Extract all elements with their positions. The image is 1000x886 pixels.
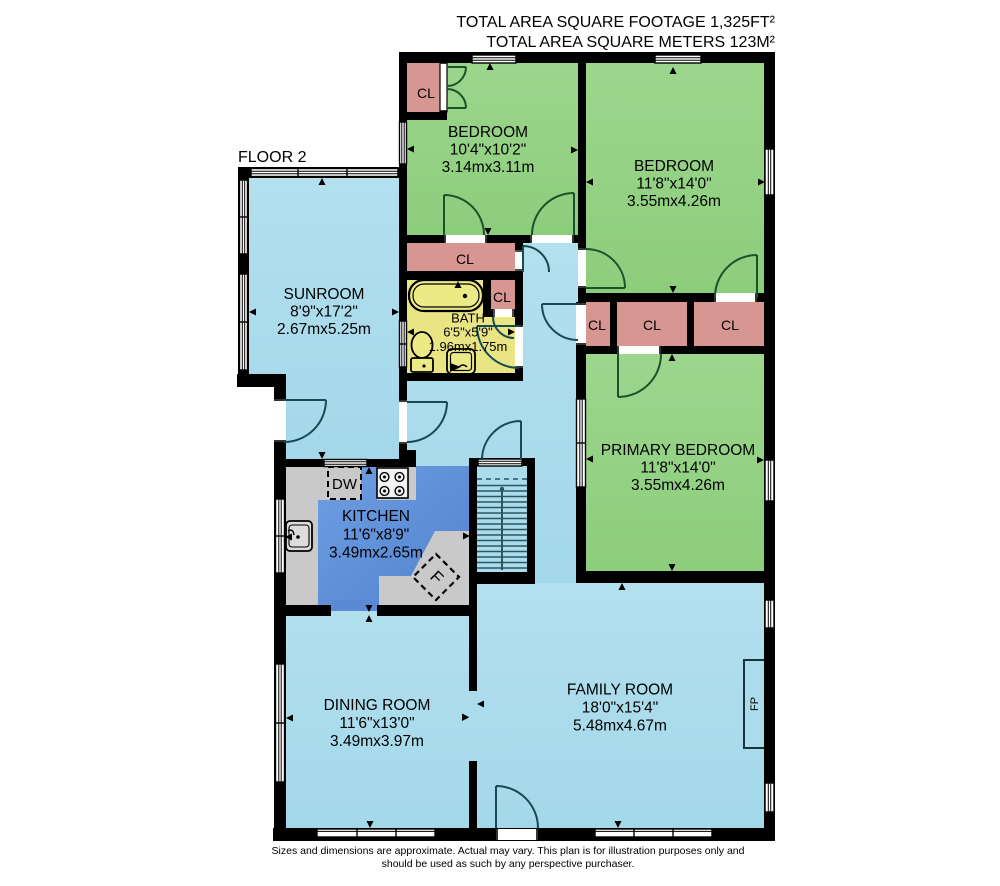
- svg-text:2.67mx5.25m: 2.67mx5.25m: [277, 321, 371, 338]
- svg-text:11'8"x14'0": 11'8"x14'0": [640, 460, 715, 477]
- svg-text:3.55mx4.26m: 3.55mx4.26m: [627, 193, 721, 210]
- svg-text:3.14mx3.11m: 3.14mx3.11m: [442, 159, 535, 176]
- svg-text:3.49mx3.97m: 3.49mx3.97m: [330, 733, 424, 750]
- svg-text:TOTAL AREA SQUARE METERS 123M²: TOTAL AREA SQUARE METERS 123M²: [486, 34, 775, 51]
- svg-text:18'0"x15'4": 18'0"x15'4": [582, 700, 658, 717]
- svg-text:6'5"x5'9": 6'5"x5'9": [443, 325, 493, 340]
- svg-text:11'8"x14'0": 11'8"x14'0": [636, 176, 711, 193]
- svg-text:11'6"x13'0": 11'6"x13'0": [339, 715, 414, 732]
- svg-text:FAMILY ROOM: FAMILY ROOM: [567, 682, 673, 699]
- svg-text:CL: CL: [456, 251, 474, 267]
- svg-text:1.96mx1.75m: 1.96mx1.75m: [429, 339, 508, 354]
- svg-text:PRIMARY BEDROOM: PRIMARY BEDROOM: [601, 442, 755, 459]
- svg-text:5.48mx4.67m: 5.48mx4.67m: [573, 718, 667, 735]
- svg-text:BEDROOM: BEDROOM: [634, 158, 714, 175]
- svg-text:3.49mx2.65m: 3.49mx2.65m: [329, 545, 423, 562]
- svg-text:TOTAL AREA SQUARE FOOTAGE 1,32: TOTAL AREA SQUARE FOOTAGE 1,325FT²: [456, 14, 775, 31]
- svg-text:KITCHEN: KITCHEN: [342, 508, 410, 525]
- svg-text:FLOOR 2: FLOOR 2: [238, 149, 307, 166]
- svg-text:CL: CL: [588, 317, 606, 333]
- svg-text:DINING ROOM: DINING ROOM: [324, 697, 431, 714]
- svg-text:should be used as such by any: should be used as such by any perspectiv…: [382, 858, 635, 870]
- svg-text:BEDROOM: BEDROOM: [448, 124, 528, 141]
- svg-text:CL: CL: [493, 289, 511, 305]
- svg-text:8'9"x17'2": 8'9"x17'2": [290, 304, 358, 321]
- svg-text:CL: CL: [643, 317, 661, 333]
- svg-text:FP: FP: [749, 697, 761, 711]
- svg-text:SUNROOM: SUNROOM: [284, 286, 365, 303]
- svg-text:10'4"x10'2": 10'4"x10'2": [450, 142, 526, 159]
- svg-text:3.55mx4.26m: 3.55mx4.26m: [631, 477, 725, 494]
- svg-text:CL: CL: [721, 317, 739, 333]
- svg-text:DW: DW: [332, 476, 358, 493]
- svg-text:Sizes and dimensions are appro: Sizes and dimensions are approximate. Ac…: [272, 845, 745, 857]
- svg-text:CL: CL: [417, 85, 435, 101]
- svg-text:BATH: BATH: [451, 311, 485, 326]
- svg-text:11'6"x8'9": 11'6"x8'9": [343, 527, 410, 544]
